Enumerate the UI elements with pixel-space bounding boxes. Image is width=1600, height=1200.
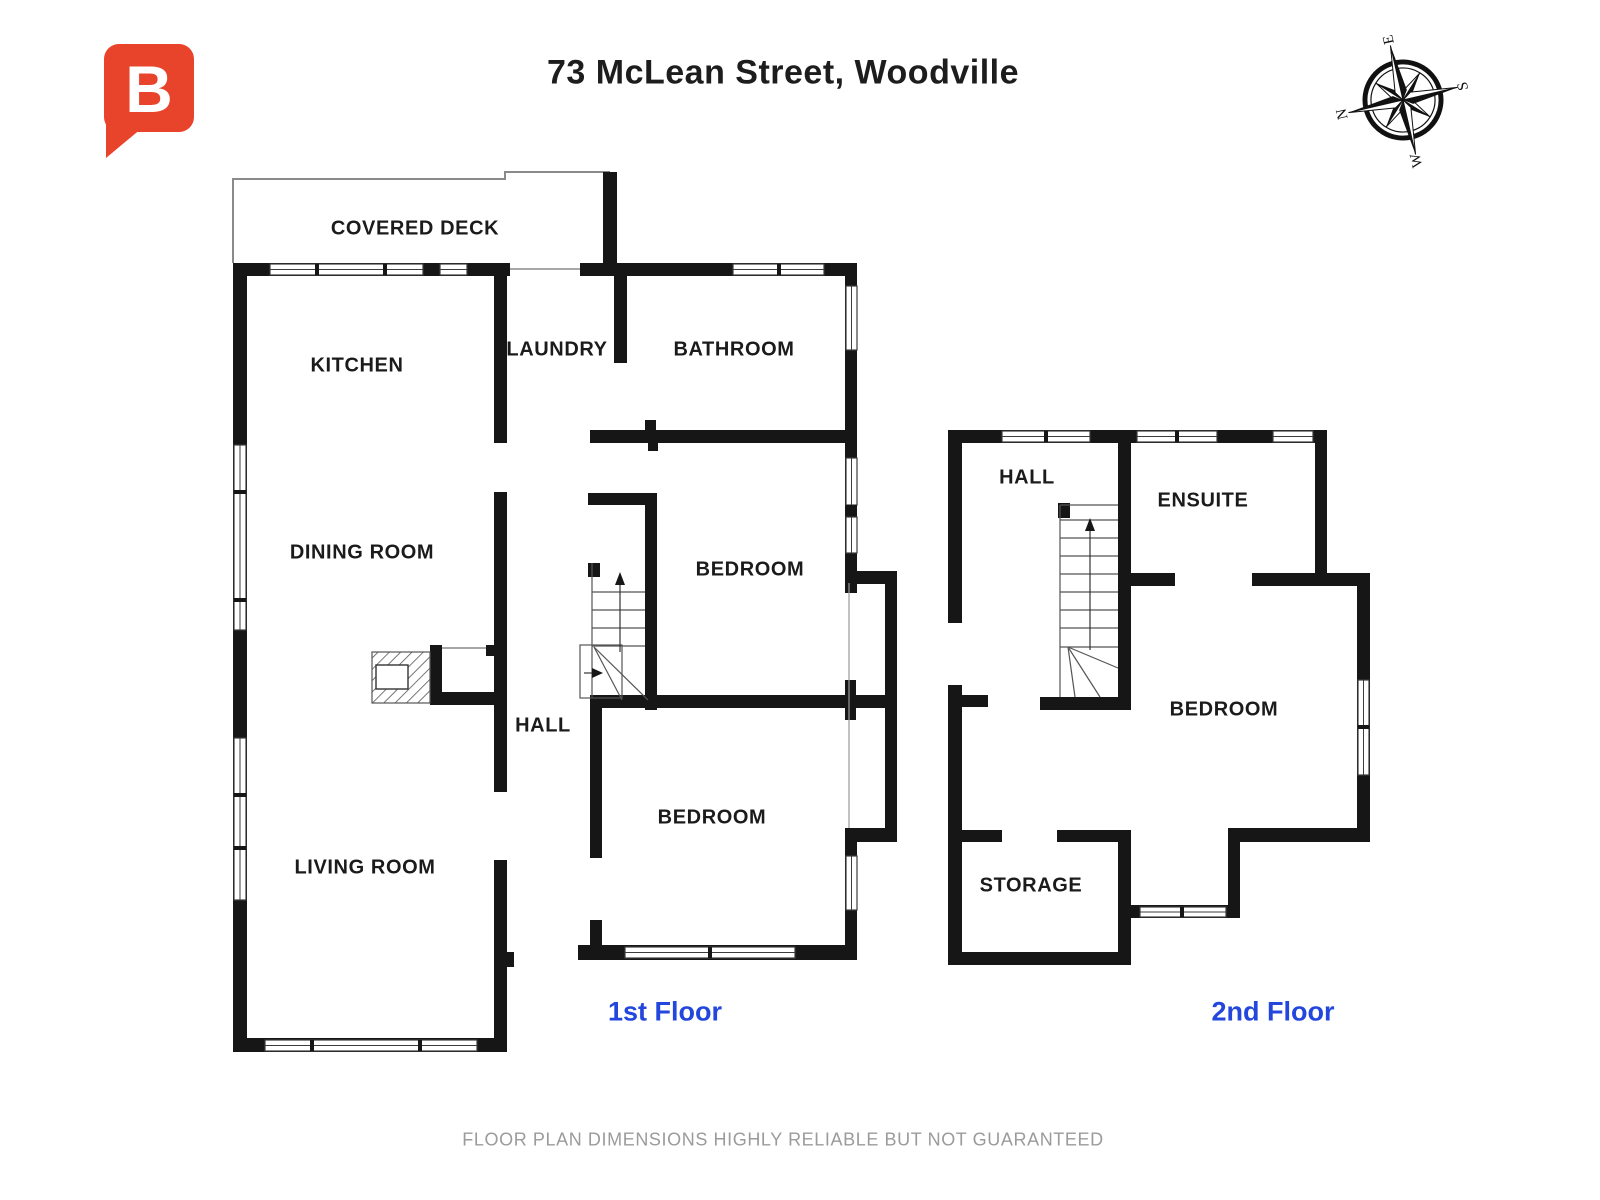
floorplan-page: B 73 McLean Street, Woodville — [0, 0, 1600, 1200]
footer-disclaimer: FLOOR PLAN DIMENSIONS HIGHLY RELIABLE BU… — [462, 1130, 1103, 1151]
fireplace — [372, 652, 430, 703]
floor1-stairs — [580, 563, 648, 700]
room-label-kitchen: KITCHEN — [310, 355, 403, 378]
room-label-bedroom-2f: BEDROOM — [1170, 699, 1279, 722]
floor1-plan — [233, 172, 897, 1052]
room-label-ensuite: ENSUITE — [1158, 490, 1249, 513]
room-label-living-room: LIVING ROOM — [294, 857, 435, 880]
room-label-hall-1f: HALL — [515, 715, 571, 738]
floorplan-drawing — [0, 0, 1600, 1200]
room-label-laundry: LAUNDRY — [506, 339, 607, 362]
room-label-hall-2f: HALL — [999, 467, 1055, 490]
floor1-walls — [233, 172, 897, 1052]
room-label-bathroom: BATHROOM — [673, 339, 794, 362]
room-label-bedroom-lower: BEDROOM — [658, 807, 767, 830]
room-label-dining-room: DINING ROOM — [290, 542, 434, 565]
room-label-covered-deck: COVERED DECK — [331, 218, 499, 241]
room-label-bedroom-upper: BEDROOM — [696, 559, 805, 582]
room-label-storage: STORAGE — [980, 875, 1083, 898]
floor1-windows — [234, 264, 857, 1051]
floor2-label: 2nd Floor — [1212, 997, 1335, 1028]
floor2-stairs — [1060, 505, 1118, 697]
floor1-label: 1st Floor — [608, 997, 722, 1028]
